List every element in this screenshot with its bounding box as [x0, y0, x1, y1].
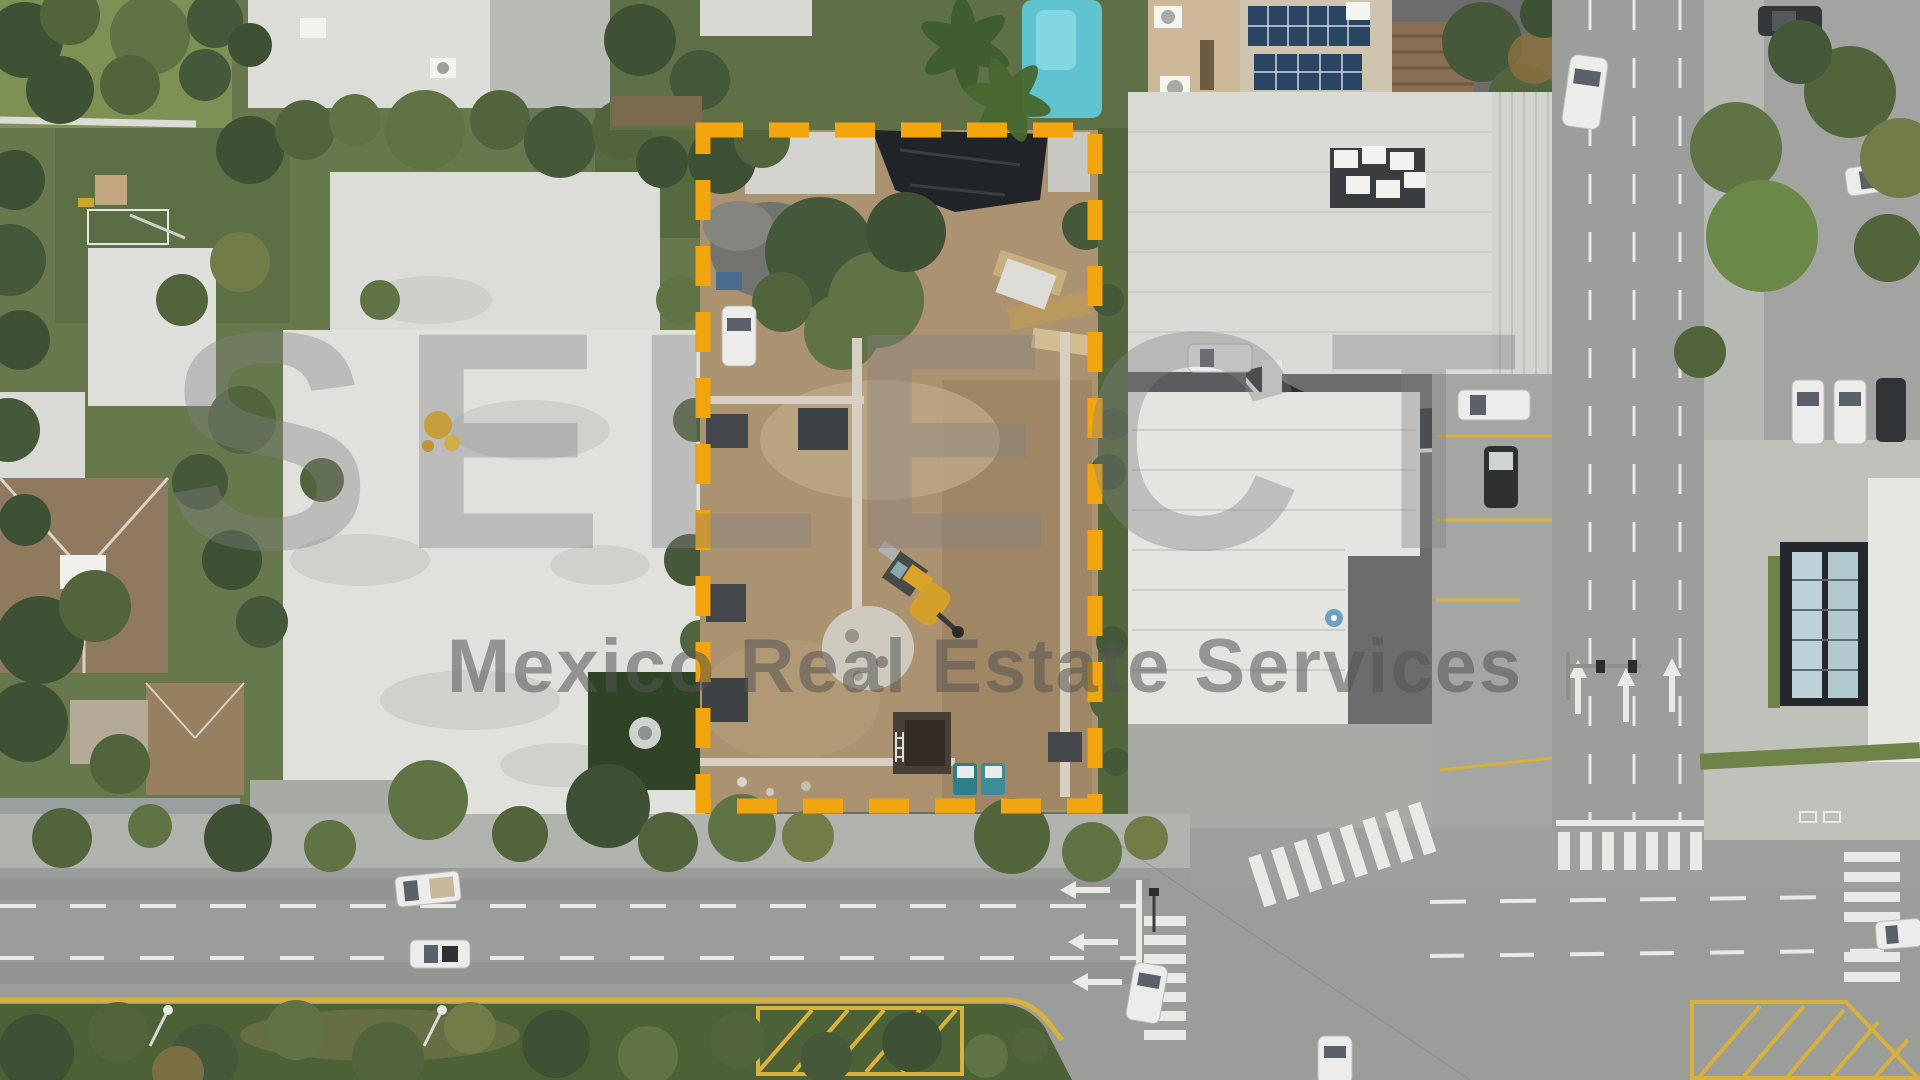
neighbor-structure — [700, 0, 812, 36]
wheel-track — [0, 878, 1150, 900]
watermark-logo-text: SELECT — [166, 267, 1545, 614]
car — [395, 871, 462, 908]
aerial-photo: SELECT Mexico Real Estate Services — [0, 0, 1920, 1080]
rubble-pile — [703, 201, 773, 251]
stop-line — [1556, 820, 1704, 826]
porta-potty — [981, 763, 1005, 795]
garden-wall — [0, 120, 196, 124]
car — [1875, 918, 1920, 950]
car — [1792, 380, 1824, 444]
tile-roof-house-2 — [146, 683, 244, 795]
debris — [766, 788, 774, 796]
ac-unit — [1346, 2, 1370, 20]
ac-unit — [300, 18, 326, 38]
storefront-white-roof — [1868, 478, 1920, 762]
grass-strip — [1768, 556, 1780, 708]
car — [1876, 378, 1906, 442]
car — [1834, 380, 1866, 444]
slide — [78, 198, 94, 207]
ac-fan — [1161, 10, 1175, 24]
car — [410, 940, 470, 968]
foundation-pit — [1048, 732, 1082, 762]
fountain-basin — [638, 726, 652, 740]
dry-hedge — [612, 96, 702, 126]
handicap-marking-dot — [1331, 615, 1337, 621]
wheel-track — [0, 962, 1150, 984]
house-roof-north — [248, 0, 490, 108]
debris — [801, 781, 811, 791]
pool-shallow — [1036, 10, 1076, 70]
demolished-walls — [1048, 132, 1090, 192]
round-tree — [1706, 180, 1818, 292]
excavation-pit-deep — [905, 720, 945, 766]
solar-panel-array — [1254, 54, 1362, 90]
skylight-slot — [1200, 40, 1214, 90]
watermark-tagline: Mexico Real Estate Services — [447, 624, 1523, 709]
debris — [737, 777, 747, 787]
aerial-photo-stage: SELECT Mexico Real Estate Services — [0, 0, 1920, 1080]
shrub — [1102, 748, 1130, 776]
tree — [604, 4, 676, 76]
car — [1318, 1036, 1352, 1080]
ac-fan — [437, 62, 449, 74]
play-canopy — [95, 175, 127, 205]
porta-potty — [953, 763, 977, 795]
